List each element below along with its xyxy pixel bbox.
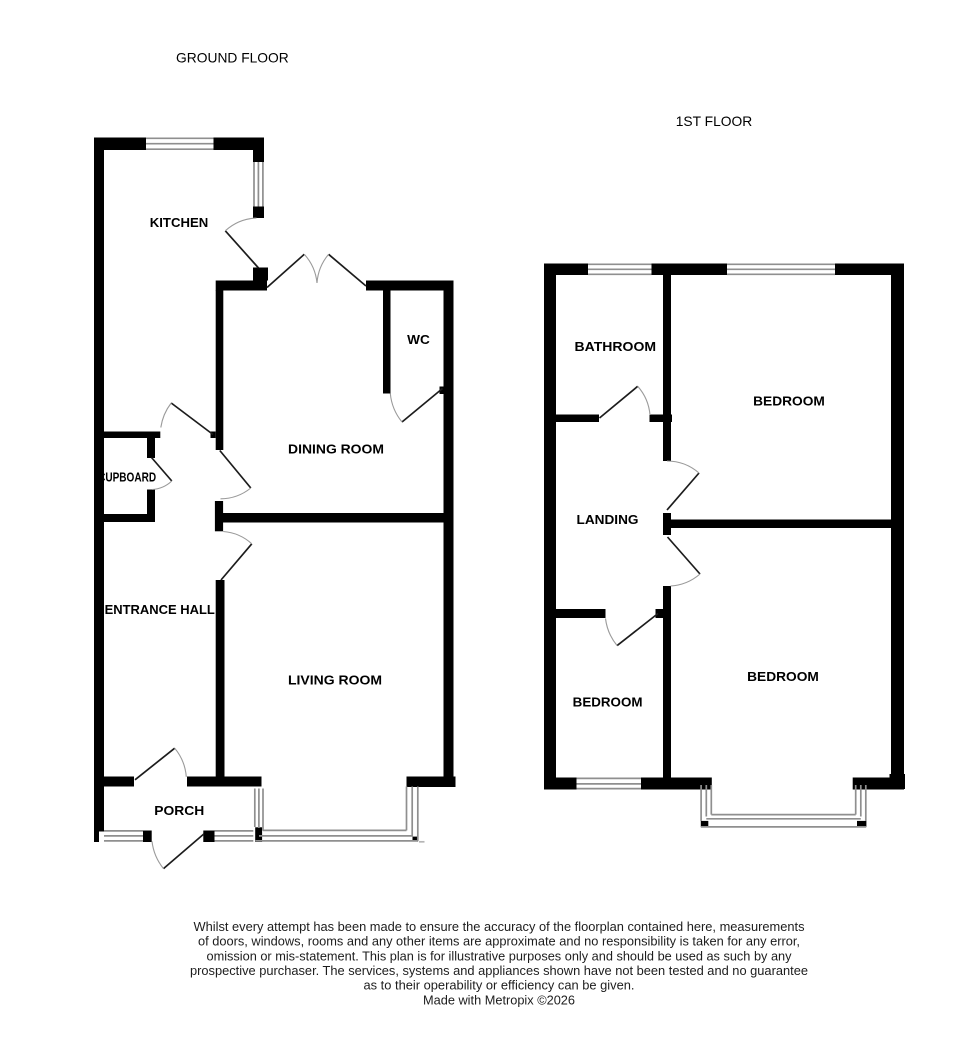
svg-text:WC: WC — [407, 332, 430, 347]
svg-text:BEDROOM: BEDROOM — [747, 669, 819, 684]
svg-text:ENTRANCE HALL: ENTRANCE HALL — [105, 602, 215, 617]
svg-text:DINING ROOM: DINING ROOM — [288, 442, 384, 457]
svg-text:Made with Metropix ©2026: Made with Metropix ©2026 — [423, 992, 575, 1007]
svg-text:1ST FLOOR: 1ST FLOOR — [676, 113, 753, 129]
svg-text:CUPBOARD: CUPBOARD — [98, 469, 156, 484]
svg-text:as to their operability or eff: as to their operability or efficiency ca… — [364, 978, 635, 993]
svg-text:Whilst every attempt has been: Whilst every attempt has been made to en… — [194, 919, 805, 934]
svg-text:BATHROOM: BATHROOM — [575, 339, 657, 354]
svg-text:PORCH: PORCH — [154, 803, 204, 818]
svg-text:of doors, windows, rooms and a: of doors, windows, rooms and any other i… — [198, 934, 800, 949]
svg-text:KITCHEN: KITCHEN — [150, 215, 208, 230]
svg-text:LIVING ROOM: LIVING ROOM — [288, 673, 382, 688]
svg-text:BEDROOM: BEDROOM — [573, 694, 643, 709]
svg-text:BEDROOM: BEDROOM — [753, 394, 825, 409]
svg-text:omission or mis-statement. Thi: omission or mis-statement. This plan is … — [207, 948, 792, 963]
svg-text:prospective purchaser. The ser: prospective purchaser. The services, sys… — [190, 963, 808, 978]
svg-text:GROUND FLOOR: GROUND FLOOR — [176, 49, 289, 65]
svg-text:LANDING: LANDING — [577, 512, 639, 527]
